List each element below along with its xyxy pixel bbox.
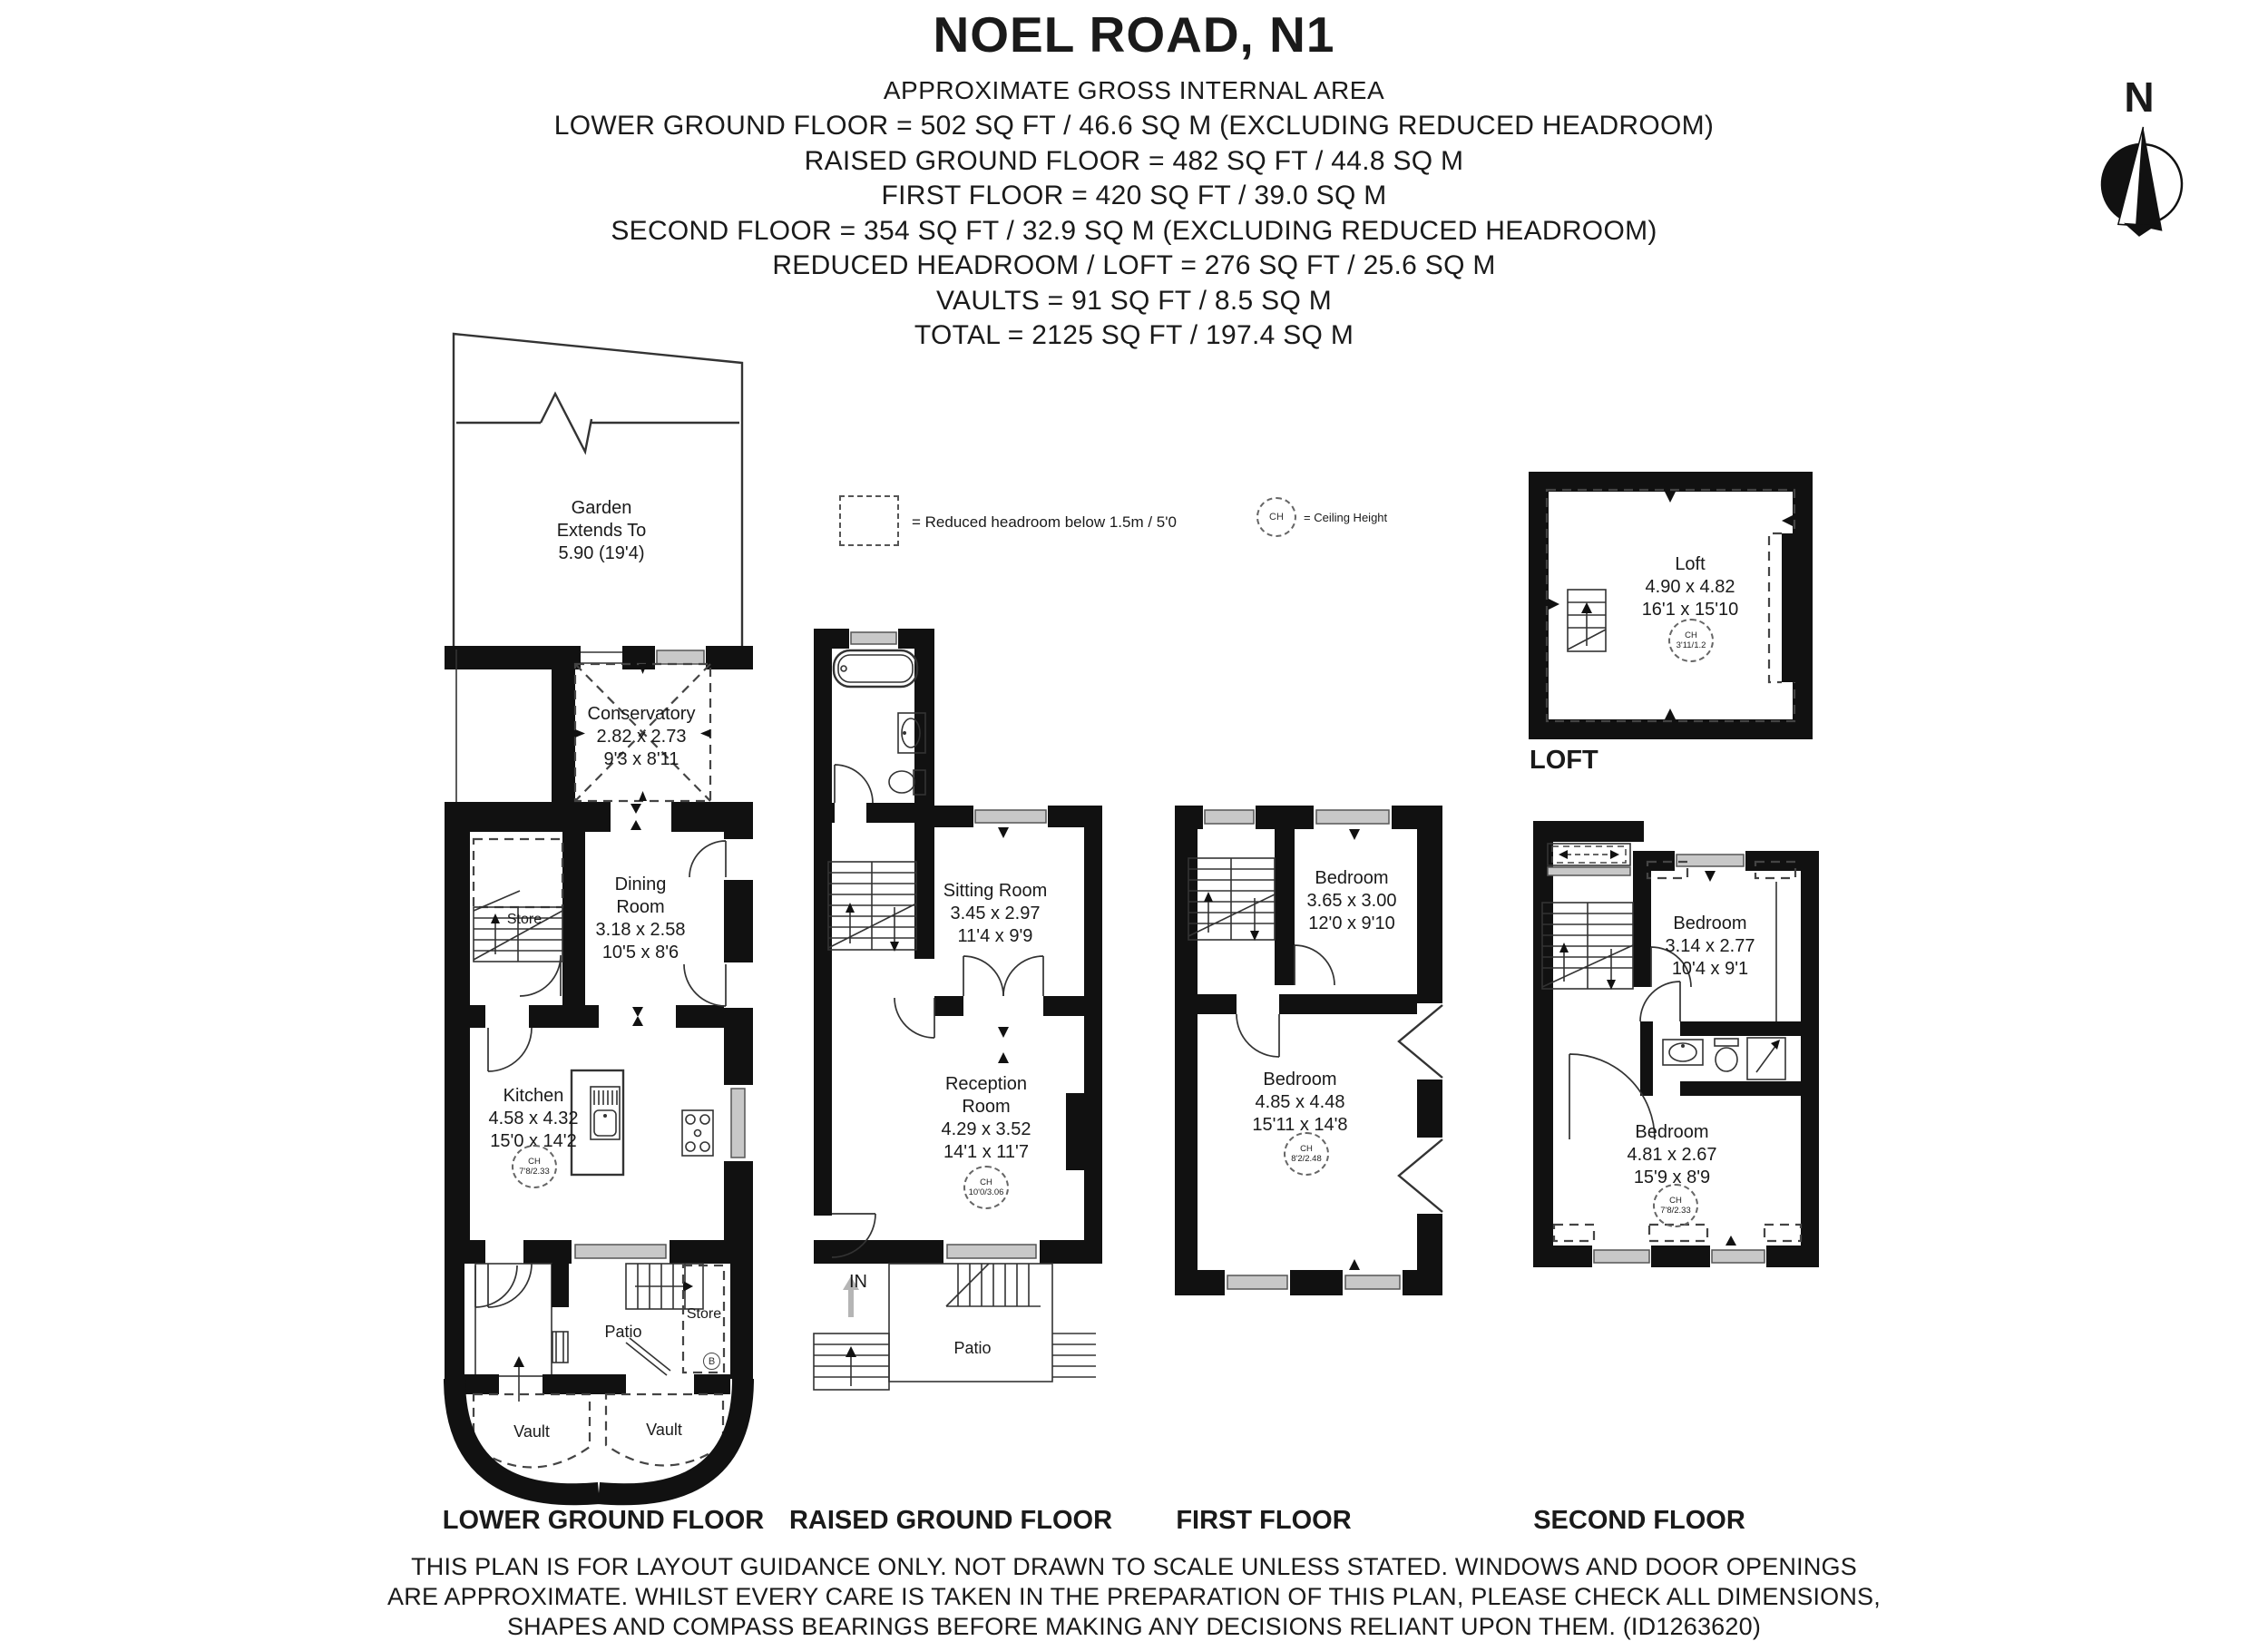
dormer-window <box>1548 844 1630 875</box>
sf-stairs <box>1542 903 1633 990</box>
ch-abbr: CH <box>1669 1196 1682 1206</box>
room-dim-metric: 3.18 x 2.58 <box>596 919 686 942</box>
area-line: TOTAL = 2125 SQ FT / 197.4 SQ M <box>0 320 2268 356</box>
room-label-bedroom-front-ff: Bedroom 4.85 x 4.48 15'11 x 14'8 <box>1252 1069 1347 1137</box>
floor-label-loft: LOFT <box>1530 746 1598 776</box>
room-name: Loft <box>1642 553 1739 576</box>
room-name: Sitting Room <box>943 880 1048 903</box>
vault-right-label: Vault <box>646 1421 682 1440</box>
ch-value: 3'11/1.2 <box>1677 640 1706 650</box>
patio-rgf-label: Patio <box>953 1339 991 1358</box>
disclaimer-line: THIS PLAN IS FOR LAYOUT GUIDANCE ONLY. N… <box>0 1553 2268 1583</box>
room-name: Room <box>596 896 686 919</box>
room-dim-imperial: 14'1 x 11'7 <box>942 1141 1031 1164</box>
ceiling-height-badge-bedroom-sf: CH 7'8/2.33 <box>1653 1184 1698 1227</box>
room-dim-metric: 4.29 x 3.52 <box>942 1119 1031 1141</box>
patio-lgf-label: Patio <box>604 1323 641 1342</box>
floor-label-second: SECOND FLOOR <box>1533 1506 1745 1536</box>
kitchen-island <box>572 1070 623 1175</box>
reduced-headroom-legend-text: = Reduced headroom below 1.5m / 5'0 <box>912 513 1177 532</box>
ch-value: 7'8/2.33 <box>1660 1206 1691 1216</box>
hob-icon <box>682 1110 713 1156</box>
store-upper-label: Store <box>507 912 542 928</box>
area-line: FIRST FLOOR = 420 SQ FT / 39.0 SQ M <box>0 181 2268 216</box>
room-label-bedroom-front-sf: Bedroom 4.81 x 2.67 15'9 x 8'9 <box>1628 1121 1717 1189</box>
room-name: Bedroom <box>1628 1121 1717 1144</box>
loft-plan <box>1515 458 1828 794</box>
lgf-patio-level <box>445 1261 753 1402</box>
rgf-stairs <box>828 862 916 952</box>
room-name: Room <box>942 1096 1031 1119</box>
ch-value: 10'0/3.06 <box>969 1187 1004 1197</box>
disclaimer: THIS PLAN IS FOR LAYOUT GUIDANCE ONLY. N… <box>0 1553 2268 1643</box>
room-dim-metric: 3.14 x 2.77 <box>1666 935 1755 958</box>
room-dim-imperial: 9'3 x 8'11 <box>588 748 696 771</box>
room-label-bedroom-rear-sf: Bedroom 3.14 x 2.77 10'4 x 9'1 <box>1666 913 1755 981</box>
room-label-bedroom-rear-ff: Bedroom 3.65 x 3.00 12'0 x 9'10 <box>1307 867 1397 935</box>
ceiling-height-abbr: CH <box>1269 512 1284 523</box>
room-dim-imperial: 12'0 x 9'10 <box>1307 913 1397 935</box>
store-lower-label: Store <box>687 1306 721 1323</box>
room-name: Bedroom <box>1307 867 1397 890</box>
room-dim-imperial: 10'4 x 9'1 <box>1666 958 1755 981</box>
page-title: NOEL ROAD, N1 <box>0 5 2268 63</box>
vault-outlines <box>455 1379 743 1494</box>
garden-line1: Garden <box>557 497 647 520</box>
area-line: RAISED GROUND FLOOR = 482 SQ FT / 44.8 S… <box>0 146 2268 181</box>
room-dim-metric: 4.58 x 4.32 <box>489 1108 579 1130</box>
room-dim-metric: 4.85 x 4.48 <box>1252 1091 1347 1114</box>
ceiling-height-badge-bedroom-ff: CH 8'2/2.48 <box>1284 1132 1329 1176</box>
loft-stairs <box>1568 590 1606 651</box>
ff-stairs <box>1188 858 1275 941</box>
header-area-lines: LOWER GROUND FLOOR = 502 SQ FT / 46.6 SQ… <box>0 111 2268 356</box>
ch-abbr: CH <box>1300 1144 1313 1154</box>
garden-outline <box>454 334 742 650</box>
ch-abbr: CH <box>1685 630 1697 640</box>
ceiling-height-legend-text: = Ceiling Height <box>1304 511 1387 524</box>
room-dim-imperial: 10'5 x 8'6 <box>596 942 686 964</box>
ceiling-height-badge-loft: CH 3'11/1.2 <box>1668 619 1714 662</box>
room-label-reception: Reception Room 4.29 x 3.52 14'1 x 11'7 <box>942 1073 1031 1164</box>
boiler-badge: B <box>703 1353 720 1370</box>
room-label-kitchen: Kitchen 4.58 x 4.32 15'0 x 14'2 <box>489 1085 579 1153</box>
room-dim-metric: 3.45 x 2.97 <box>943 903 1048 925</box>
room-name: Conservatory <box>588 703 696 726</box>
header: NOEL ROAD, N1 APPROXIMATE GROSS INTERNAL… <box>0 5 2268 356</box>
bathtub-icon <box>834 650 917 687</box>
room-name: Kitchen <box>489 1085 579 1108</box>
ceiling-height-legend-icon: CH <box>1256 497 1296 537</box>
ch-value: 8'2/2.48 <box>1291 1154 1322 1164</box>
room-dim-metric: 3.65 x 3.00 <box>1307 890 1397 913</box>
room-dim-imperial: 11'4 x 9'9 <box>943 925 1048 948</box>
room-dim-metric: 4.90 x 4.82 <box>1642 576 1739 599</box>
floor-label-first: FIRST FLOOR <box>1176 1506 1351 1536</box>
store-reduced-headroom <box>474 839 562 907</box>
area-line: VAULTS = 91 SQ FT / 8.5 SQ M <box>0 286 2268 321</box>
floorplan-page: { "header": { "title": "NOEL ROAD, N1", … <box>0 0 2268 1651</box>
compass-needle <box>2098 124 2185 239</box>
ch-abbr: CH <box>528 1157 541 1167</box>
room-label-loft: Loft 4.90 x 4.82 16'1 x 15'10 <box>1642 553 1739 621</box>
ch-abbr: CH <box>980 1177 992 1187</box>
room-name: Reception <box>942 1073 1031 1096</box>
area-line: LOWER GROUND FLOOR = 502 SQ FT / 46.6 SQ… <box>0 111 2268 146</box>
room-dim-metric: 2.82 x 2.73 <box>588 726 696 748</box>
reduced-headroom-legend-icon <box>839 495 899 546</box>
room-name: Bedroom <box>1252 1069 1347 1091</box>
room-name: Bedroom <box>1666 913 1755 935</box>
sf-bathroom <box>1640 1021 1801 1096</box>
header-subtitle: APPROXIMATE GROSS INTERNAL AREA <box>0 76 2268 105</box>
room-dim-metric: 4.81 x 2.67 <box>1628 1144 1717 1167</box>
ceiling-height-badge-kitchen: CH 7'8/2.33 <box>512 1145 557 1188</box>
room-label-conservatory: Conservatory 2.82 x 2.73 9'3 x 8'11 <box>588 703 696 771</box>
area-line: REDUCED HEADROOM / LOFT = 276 SQ FT / 25… <box>0 250 2268 286</box>
room-label-dining: Dining Room 3.18 x 2.58 10'5 x 8'6 <box>596 874 686 964</box>
ch-value: 7'8/2.33 <box>519 1167 550 1177</box>
lgf-bottom-openings <box>485 1240 670 1307</box>
disclaimer-line: ARE APPROXIMATE. WHILST EVERY CARE IS TA… <box>0 1583 2268 1613</box>
room-label-sitting: Sitting Room 3.45 x 2.97 11'4 x 9'9 <box>943 880 1048 948</box>
compass-icon <box>2077 122 2209 245</box>
ceiling-height-badge-reception: CH 10'0/3.06 <box>963 1166 1009 1209</box>
area-line: SECOND FLOOR = 354 SQ FT / 32.9 SQ M (EX… <box>0 216 2268 251</box>
garden-line2: Extends To <box>557 520 647 542</box>
disclaimer-line: SHAPES AND COMPASS BEARINGS BEFORE MAKIN… <box>0 1613 2268 1643</box>
vault-left-label: Vault <box>513 1422 550 1441</box>
floor-label-lower-ground: LOWER GROUND FLOOR <box>443 1506 764 1536</box>
floor-label-raised-ground: RAISED GROUND FLOOR <box>789 1506 1112 1536</box>
second-floor-plan <box>1515 812 1833 1320</box>
room-name: Dining <box>596 874 686 896</box>
garden-label: Garden Extends To 5.90 (19'4) <box>557 497 647 565</box>
garden-line3: 5.90 (19'4) <box>557 542 647 565</box>
entrance-in-label: IN <box>849 1272 867 1293</box>
compass-north-label: N <box>2124 73 2154 122</box>
